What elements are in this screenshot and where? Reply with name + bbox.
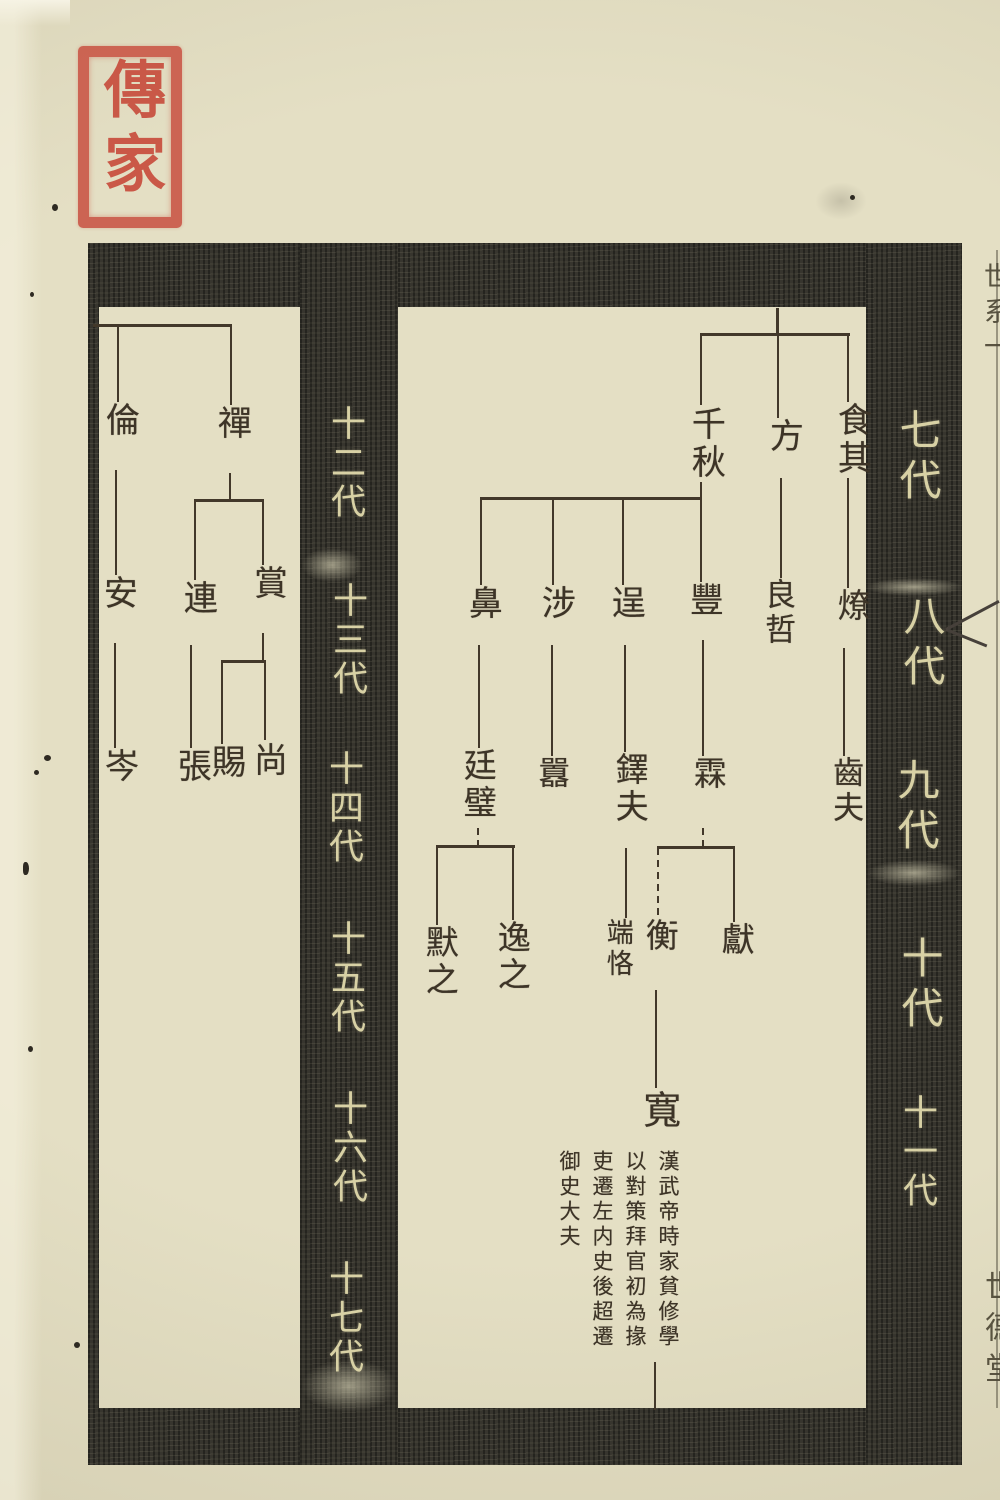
person-an: 安 — [98, 575, 135, 613]
tree-line — [700, 499, 702, 582]
scanned-page: 傳家 七代 八代 九代 十代 十一代 十二代 十三代 十四代 十五代 十六代 十… — [0, 0, 1000, 1500]
tree-line — [221, 662, 223, 744]
tree-line — [115, 470, 117, 575]
tree-line — [117, 326, 119, 402]
seal-stamp: 傳家 — [78, 46, 182, 228]
photo-edge-highlight — [0, 0, 70, 26]
person-lin: 霖 — [688, 756, 724, 793]
generation-label-7: 七代 — [886, 408, 947, 508]
tree-line — [776, 308, 779, 335]
tree-line — [194, 499, 264, 502]
person-qianqiu: 千秋 — [686, 406, 723, 482]
band-wear-mark — [868, 860, 960, 886]
tree-line — [702, 640, 704, 756]
tree-line — [264, 662, 266, 740]
person-heng: 衡 — [640, 918, 676, 955]
generation-label-9: 九代 — [884, 758, 945, 858]
tree-line — [194, 501, 196, 580]
tree-line — [657, 846, 735, 849]
tree-line — [780, 478, 782, 578]
person-shiqi: 食其 — [832, 402, 869, 478]
person-tingbi: 廷璧 — [458, 748, 494, 822]
biography-text: 漢武帝時家貧修學以對策拜官初為掾吏遷左内史後超遷御史大夫 — [546, 1150, 684, 1364]
tree-line — [114, 643, 116, 748]
person-fang: 方 — [764, 418, 801, 456]
paper-speck — [52, 204, 58, 211]
person-duofu: 鐸夫 — [610, 752, 646, 826]
tree-line — [657, 848, 659, 918]
tree-line — [262, 501, 264, 565]
person-mozhi: 默之 — [420, 925, 456, 999]
tree-line — [229, 473, 231, 500]
tree-line — [847, 478, 849, 588]
person-zhang: 張 — [172, 748, 209, 786]
seal-text: 傳家 — [97, 57, 159, 205]
person-lun: 倫 — [100, 402, 137, 440]
tree-line — [843, 648, 845, 756]
person-cheng: 逞 — [606, 585, 643, 623]
tree-line — [221, 660, 266, 663]
person-kuan: 寬 — [636, 1090, 678, 1132]
border-frame-left — [88, 243, 99, 1465]
border-frame-bottom — [88, 1408, 962, 1465]
paper-speck — [30, 292, 34, 297]
person-chifu: 齒夫 — [828, 756, 862, 826]
tree-line — [552, 499, 554, 585]
tree-line — [262, 633, 264, 662]
generation-label-8: 八代 — [890, 594, 951, 694]
paper-speck — [74, 1342, 80, 1348]
person-liangzhe: 良哲 — [760, 578, 794, 648]
person-liao: 燎 — [832, 588, 868, 625]
tree-line — [700, 482, 702, 498]
person-duanke: 端恪 — [602, 918, 632, 980]
person-xiao: 囂 — [534, 756, 569, 792]
paper-speck — [44, 755, 51, 761]
person-xian: 獻 — [716, 922, 752, 959]
tree-line — [436, 845, 515, 848]
tree-line — [551, 645, 553, 756]
generation-label-16: 十六代 — [322, 1090, 373, 1207]
person-chan: 禪 — [212, 405, 249, 443]
tree-line — [512, 847, 514, 920]
paper-speck — [23, 862, 29, 875]
person-shangx: 尚 — [248, 742, 285, 780]
band-wear-mark — [302, 548, 362, 582]
tree-line — [777, 335, 779, 418]
tree-line — [655, 990, 657, 1088]
generation-label-14: 十四代 — [318, 750, 369, 867]
tree-line — [480, 497, 702, 500]
person-she: 涉 — [536, 585, 573, 623]
generation-label-17: 十七代 — [318, 1260, 369, 1377]
person-bi: 鼻 — [463, 585, 500, 623]
generation-label-13: 十三代 — [322, 582, 373, 699]
person-feng: 豐 — [684, 582, 721, 620]
generation-label-11: 十一代 — [892, 1094, 943, 1211]
border-frame-top — [88, 243, 962, 307]
tree-line — [624, 645, 626, 752]
paper-smudge — [815, 182, 867, 220]
tree-line — [700, 333, 850, 336]
person-shang: 賞 — [248, 565, 285, 603]
tree-line — [93, 324, 232, 327]
paper-speck — [28, 1046, 33, 1052]
paper-speck — [850, 195, 855, 200]
tree-line — [700, 335, 702, 405]
tree-line — [436, 847, 438, 925]
person-si: 賜 — [206, 744, 243, 782]
paper-speck — [34, 770, 39, 775]
tree-line — [480, 499, 482, 585]
tree-line — [847, 335, 849, 402]
generation-label-12: 十二代 — [320, 405, 371, 522]
tree-line — [702, 828, 704, 847]
edge-rule-line — [996, 250, 998, 1408]
generation-label-10: 十代 — [888, 936, 949, 1036]
tree-line — [190, 645, 192, 748]
person-lian: 連 — [178, 580, 215, 618]
tree-line — [622, 499, 624, 585]
tree-line — [733, 848, 735, 922]
person-cen: 岑 — [99, 748, 136, 786]
tree-line — [625, 848, 627, 918]
tree-line — [230, 326, 232, 405]
tree-line — [478, 645, 480, 748]
tree-line — [654, 1362, 656, 1410]
person-yizhi: 逸之 — [492, 920, 528, 994]
generation-label-15: 十五代 — [320, 920, 371, 1037]
